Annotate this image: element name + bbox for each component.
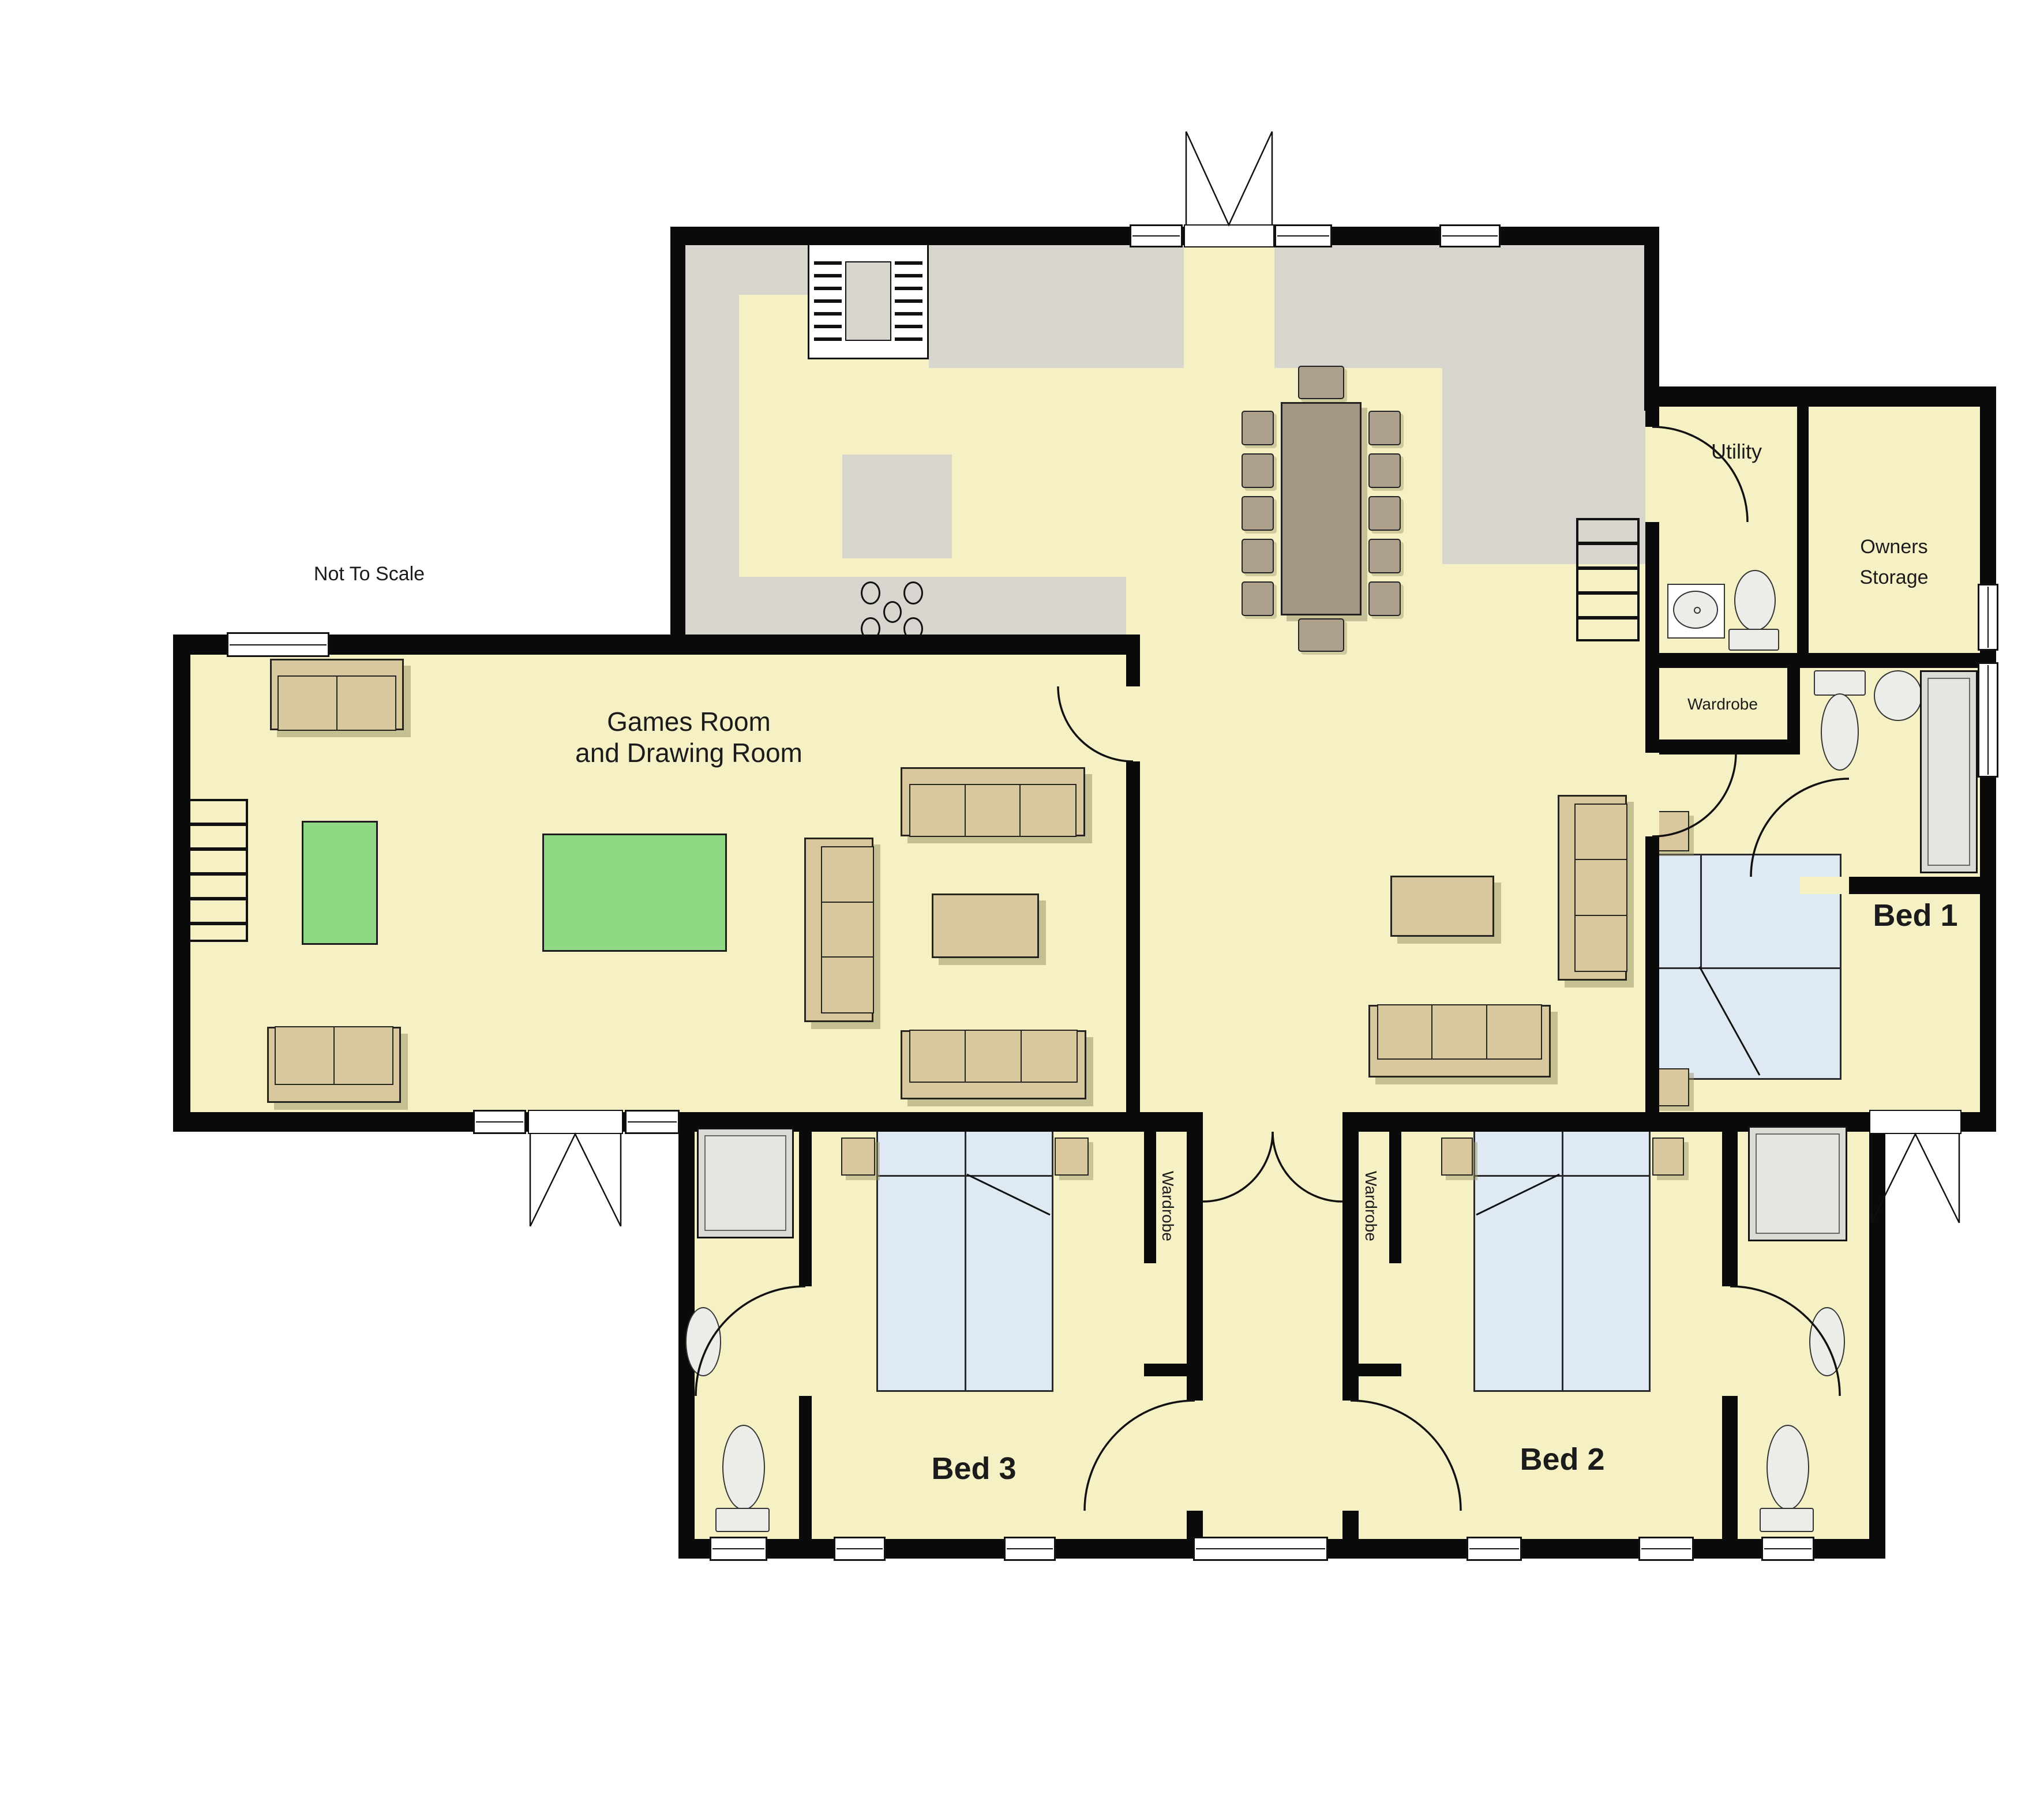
french-door-leaves — [530, 1133, 621, 1226]
room-label-bed3: Bed 3 — [887, 1451, 1060, 1488]
linework-layer — [0, 0, 2044, 1817]
door-arc — [1273, 1132, 1342, 1202]
room-label-games: Games Room and Drawing Room — [545, 706, 833, 769]
floor-plan: Not To Scale Games Room and Drawing Room… — [0, 0, 2044, 1817]
room-label-games-line1: Games Room — [545, 706, 833, 737]
door-arc — [1058, 686, 1133, 761]
door-arc — [1351, 1401, 1461, 1511]
room-label-storage-line2: Storage — [1809, 562, 1979, 593]
room-label-utility: Utility — [1662, 440, 1812, 464]
french-door-leaves — [1872, 1133, 1959, 1223]
room-label-bed2: Bed 2 — [1476, 1441, 1649, 1478]
bed-fold-line — [1700, 967, 1760, 1075]
room-label-bed1: Bed 1 — [1829, 898, 2002, 934]
door-arc — [1730, 1286, 1840, 1396]
door-arc — [1085, 1401, 1195, 1511]
door-arc — [1652, 753, 1736, 836]
room-label-wardrobe-bed1: Wardrobe — [1659, 694, 1786, 714]
scale-note: Not To Scale — [254, 562, 485, 585]
room-label-wardrobe-bed2: Wardrobe — [1362, 1171, 1381, 1344]
french-door-leaves — [1186, 132, 1272, 225]
bed-fold-line — [967, 1174, 1050, 1215]
door-arc — [1203, 1132, 1273, 1202]
room-label-storage-line1: Owners — [1809, 532, 1979, 562]
bed-fold-line — [1476, 1174, 1559, 1215]
room-label-wardrobe-bed3: Wardrobe — [1158, 1171, 1177, 1344]
door-arc — [696, 1286, 805, 1396]
room-label-owners-storage: Owners Storage — [1809, 532, 1979, 592]
door-arc — [1751, 779, 1849, 877]
room-label-games-line2: and Drawing Room — [545, 737, 833, 768]
